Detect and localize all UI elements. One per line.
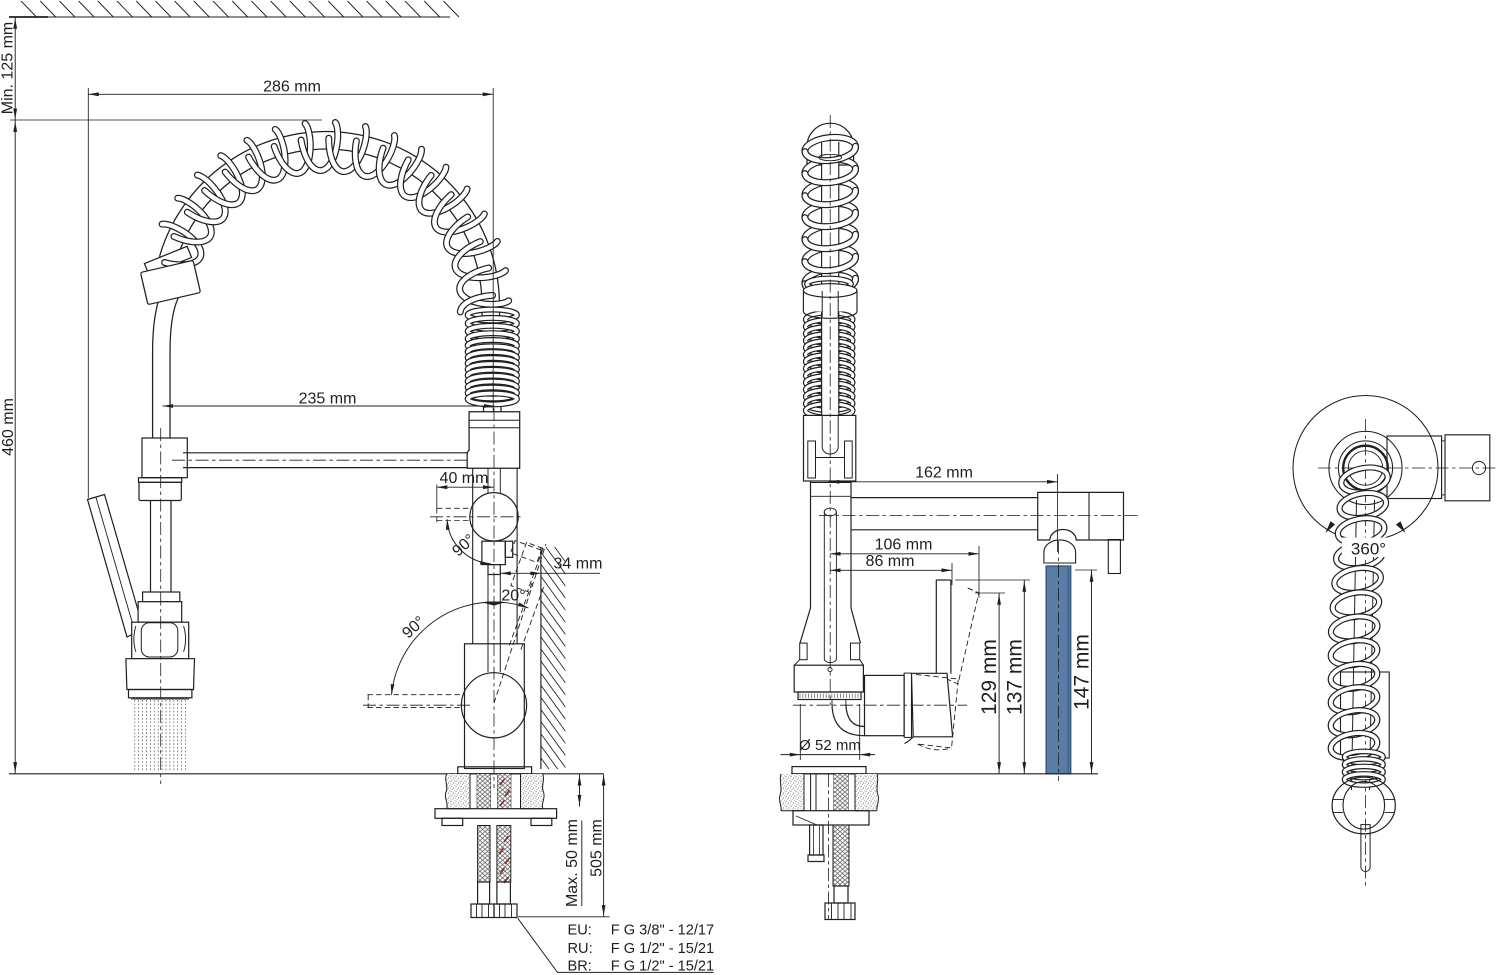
svg-text:Min. 125 mm: Min. 125 mm bbox=[0, 22, 17, 114]
svg-text:86 mm: 86 mm bbox=[866, 553, 915, 570]
svg-text:EU:: EU: bbox=[568, 923, 592, 939]
svg-text:Max. 50 mm: Max. 50 mm bbox=[564, 819, 581, 907]
svg-text:RU:: RU: bbox=[568, 941, 593, 957]
svg-text:505 mm: 505 mm bbox=[589, 819, 606, 877]
svg-text:BR:: BR: bbox=[568, 959, 592, 975]
svg-text:34 mm: 34 mm bbox=[554, 556, 603, 573]
svg-text:F G 1/2" - 15/21: F G 1/2" - 15/21 bbox=[611, 941, 714, 957]
svg-text:Ø 52 mm: Ø 52 mm bbox=[799, 737, 861, 754]
svg-text:106 mm: 106 mm bbox=[875, 536, 933, 553]
svg-text:360°: 360° bbox=[1351, 540, 1386, 559]
svg-text:40 mm: 40 mm bbox=[440, 470, 489, 487]
svg-text:162 mm: 162 mm bbox=[915, 464, 973, 481]
svg-text:460 mm: 460 mm bbox=[0, 398, 17, 456]
svg-text:F G 1/2" - 15/21: F G 1/2" - 15/21 bbox=[611, 959, 714, 975]
svg-text:F G 3/8" - 12/17: F G 3/8" - 12/17 bbox=[611, 923, 714, 939]
svg-text:137 mm: 137 mm bbox=[1003, 639, 1026, 715]
svg-text:129 mm: 129 mm bbox=[978, 639, 1001, 715]
svg-text:286 mm: 286 mm bbox=[263, 79, 321, 96]
svg-text:20°: 20° bbox=[501, 588, 525, 605]
svg-text:235 mm: 235 mm bbox=[299, 391, 357, 408]
svg-text:147 mm: 147 mm bbox=[1071, 634, 1094, 710]
